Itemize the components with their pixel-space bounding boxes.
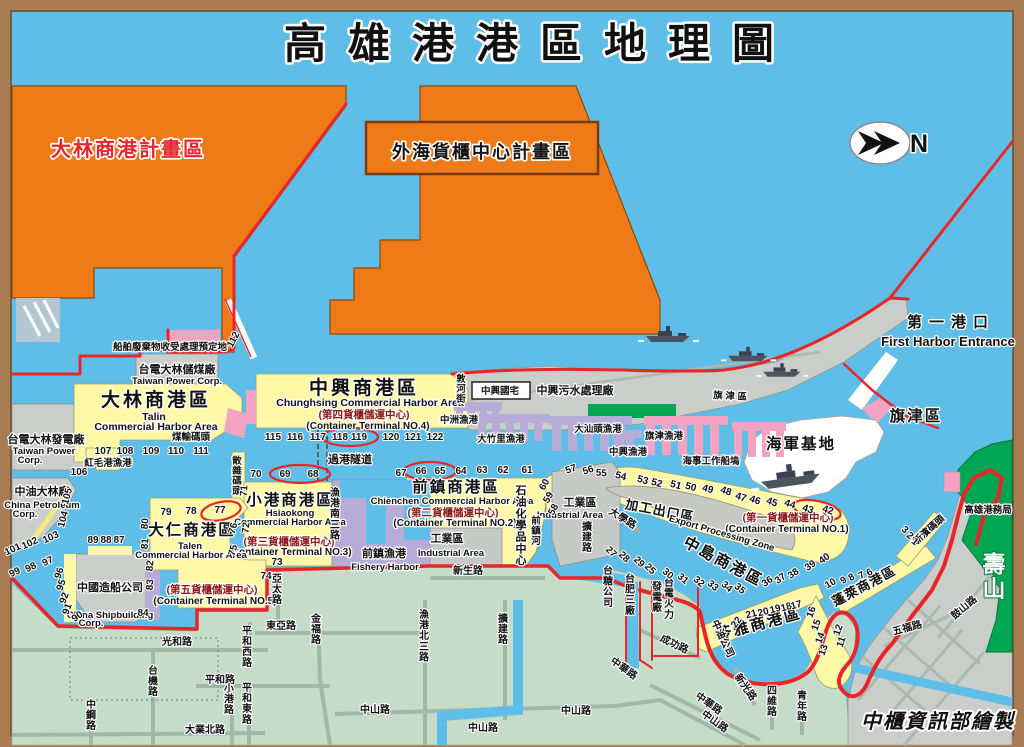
label-yukang-n3-rd: 漁港北三路 [419, 608, 430, 663]
label-ct3-en: (Container Terminal NO.3) [228, 547, 351, 558]
label-b78: 78 [185, 506, 197, 517]
label-chungchou-fish: 中洲漁港 [440, 414, 479, 426]
label-chingnien-rd: 青年路 [797, 689, 808, 723]
label-tunhe-st: 敦河街 [455, 373, 466, 405]
label-tunnel: 過港隧道 [327, 452, 372, 466]
label-pinghe-e-rd: 平和東路 [241, 682, 253, 726]
label-taipower-thermal-2: 發電廠 [651, 580, 663, 614]
label-ship-waste: 船舶廢棄物收受處理預定地 [113, 341, 228, 353]
label-sewage-plant: 中興污水處理廠 [537, 383, 615, 397]
label-b71: 71 [239, 484, 251, 496]
label-hsiaokong-zh: 小港商港區 [246, 490, 334, 509]
label-kuochien-rd-1: 擴建路 [581, 520, 593, 554]
label-b81: 81 [140, 537, 152, 549]
label-ct5-zh: (第五貨櫃儲運中心) [167, 583, 258, 596]
label-b61: 61 [521, 465, 533, 476]
label-chungkang-rd: 中鋼路 [85, 698, 97, 732]
label-yatai-rd: 亞太路 [271, 573, 283, 606]
label-b117: 117 [310, 432, 327, 443]
kaohsiung-port-map: 高雄港港區地理圖中櫃資訊部繪製N大林商港計畫區外海貨櫃中心計畫區第一港口Firs… [0, 0, 1024, 747]
label-entrance-zh: 第一港口 [907, 313, 995, 331]
label-b72: 72 [241, 521, 253, 533]
label-b122: 122 [427, 432, 444, 443]
label-cpc-talin-en2: Corp. [13, 509, 38, 520]
label-petrochem: 石油化學品中心 [515, 484, 527, 567]
label-plan-talin: 大林商港計畫區 [51, 137, 205, 161]
label-b69: 69 [279, 469, 291, 480]
label-szwei-rd: 四維路 [767, 685, 778, 718]
label-b89: 89 [87, 535, 99, 546]
label-yukang-s3-rd: 漁港南三路 [330, 486, 341, 541]
harbor-bureau-block [944, 472, 960, 492]
label-b66: 66 [415, 466, 427, 477]
label-tungya-rd: 東亞路 [266, 619, 297, 632]
label-b108: 108 [117, 446, 134, 457]
label-b118: 118 [332, 432, 349, 443]
label-ct4-zh: (第四貨櫃儲運中心) [319, 408, 410, 421]
label-hongmao: 紅毛港漁港 [84, 457, 132, 469]
label-chungshan-rd-1: 中山路 [360, 703, 391, 716]
label-chungshan-rd-3: 中山路 [468, 721, 499, 734]
label-hsiaokang-rd: 小港路 [223, 682, 235, 716]
label-b82: 82 [145, 559, 157, 571]
label-b64: 64 [455, 466, 467, 477]
label-b111: 111 [193, 446, 209, 457]
label-b87: 87 [113, 535, 125, 546]
label-talin-zh: 大林商港區 [101, 388, 211, 411]
label-chunghsing-zh: 中興商港區 [309, 376, 419, 399]
label-ct4-en: (Container Terminal NO.4) [306, 421, 429, 432]
label-chunghsing-housing: 中興國宅 [481, 385, 520, 397]
label-chunghsing-en: Chunghsing Commercial Harbor Area [276, 397, 464, 409]
label-b80: 80 [140, 517, 152, 529]
label-b107: 107 [95, 446, 112, 457]
label-entrance-en: First Harbor Entrance [881, 334, 1015, 349]
label-cijin-fish: 旗津漁港 [645, 430, 684, 442]
label-credit: 中櫃資訊部繪製 [861, 709, 1016, 733]
label-taipower-thermal-1: 台電火力 [664, 576, 675, 621]
label-chunghsing-fish: 中興漁港 [609, 446, 648, 458]
compass-icon [850, 122, 910, 164]
label-csbc-zh: 中國造船公司 [77, 580, 143, 594]
label-b106: 106 [71, 467, 88, 478]
label-tashantou-fish: 大汕頭漁港 [574, 423, 622, 435]
label-ct2-en: (Container Terminal NO.2) [393, 518, 516, 529]
label-coal-plant-zh: 台電大林儲煤廠 [139, 362, 217, 376]
label-b120: 120 [383, 432, 400, 443]
label-b119: 119 [351, 432, 368, 443]
label-b88: 88 [100, 535, 112, 546]
label-b110: 110 [168, 446, 185, 457]
label-kuanghe-rd: 光和路 [161, 635, 193, 648]
label-b74: 74 [260, 571, 272, 582]
label-hsinsheng-rd: 新生路 [453, 564, 484, 577]
label-b68: 68 [307, 469, 319, 480]
label-industrial2: 工業區 [564, 495, 597, 509]
label-coal-wharf: 煤輸碼頭 [172, 431, 211, 443]
label-b116: 116 [287, 432, 304, 443]
label-power-plant-zh: 台電大林發電廠 [8, 432, 86, 446]
label-tachuli-fish: 大竹里漁港 [477, 433, 525, 445]
label-industrial1-en: Industrial Area [418, 548, 485, 559]
label-chinfu-rd: 金福路 [310, 612, 322, 646]
label-b63: 63 [476, 465, 488, 476]
label-chienchen-zh: 前鎮商港區 [412, 477, 500, 496]
label-cijin-district: 旗津區 [890, 406, 943, 425]
label-navy-base: 海軍基地 [766, 434, 836, 453]
label-b79: 79 [160, 507, 172, 518]
label-taisugar: 台糖公司 [603, 564, 613, 609]
label-b83: 83 [145, 578, 157, 590]
label-power-plant-en2: Corp. [18, 455, 43, 466]
label-plan-offshore: 外海貨櫃中心計畫區 [392, 141, 572, 162]
label-b109: 109 [143, 446, 160, 457]
shipyard-quay-top [88, 546, 132, 555]
label-kuochien-rd-2: 擴建路 [497, 612, 509, 646]
label-compass-n: N [910, 130, 928, 158]
chunghsing-pink-nub [246, 390, 256, 424]
label-coal-plant-en: Taiwan Power Corp. [132, 376, 222, 387]
label-b70: 70 [250, 469, 262, 480]
label-harbor-bureau: 高雄港務局 [964, 504, 1012, 516]
label-b55: 55 [595, 468, 607, 480]
label-b84: 84 [137, 608, 149, 619]
label-b115: 115 [265, 432, 282, 443]
label-tayeh-n-rd: 大業北路 [185, 723, 226, 736]
cijin-green-strip [588, 404, 676, 418]
label-tajen-zh: 大仁商港區 [148, 520, 236, 539]
label-taifei: 台肥三廠 [625, 572, 636, 617]
label-marine-dock: 海事工作船塢 [682, 455, 740, 467]
label-chungshan-rd-2: 中山路 [561, 704, 592, 717]
label-fishery-zh: 前鎮漁港 [362, 546, 407, 560]
label-fishery-en: Fishery Harbor [351, 562, 419, 573]
label-b62: 62 [497, 465, 509, 476]
label-taichi-rd: 台機路 [148, 664, 159, 698]
label-b65: 65 [434, 466, 446, 477]
label-industrial1: 工業區 [431, 531, 464, 545]
label-map-title: 高雄港港區地理圖 [284, 19, 796, 68]
label-chienchen-en: Chienchen Commercial Harbor Area [371, 496, 534, 507]
label-b67: 67 [395, 468, 407, 479]
label-chienchen-river: 前鎮河 [531, 515, 541, 547]
label-b73: 73 [271, 557, 283, 568]
label-shoushan: 壽山 [983, 551, 1006, 601]
label-ct1-zh: (第一貨櫃儲運中心) [743, 511, 834, 524]
label-pinghe-w-rd: 平和西路 [241, 625, 253, 669]
label-ct5-en: (Container Terminal NO.5) [153, 596, 276, 607]
label-b121: 121 [405, 432, 422, 443]
label-b77: 77 [214, 505, 226, 516]
label-cijin-strip: 旗 津 區 [713, 389, 748, 403]
